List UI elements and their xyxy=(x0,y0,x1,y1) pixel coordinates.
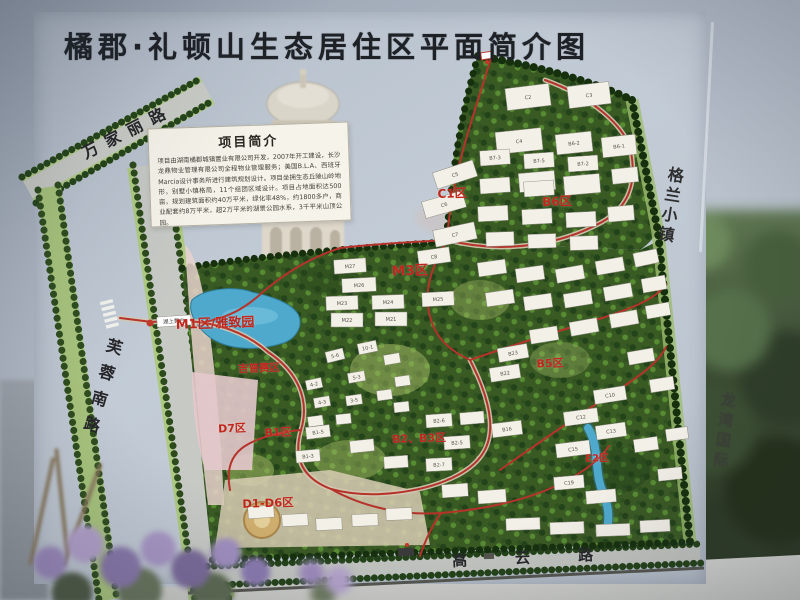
zone-label-c1: C1区 xyxy=(437,184,467,202)
building-block xyxy=(376,389,392,401)
building-block xyxy=(349,439,374,453)
building-block: 3-5 xyxy=(345,394,362,406)
building-block xyxy=(640,519,671,533)
building-label: B16 xyxy=(502,426,512,433)
building-label: B7-2 xyxy=(577,161,589,168)
west-gate-marker xyxy=(147,320,154,327)
building-block: M27 xyxy=(334,258,367,274)
building-block: B7-3 xyxy=(480,149,511,166)
building-block xyxy=(607,205,634,222)
building-block: B2-5 xyxy=(444,435,471,450)
building-label: C15 xyxy=(568,446,579,453)
building-label: M24 xyxy=(383,300,394,306)
building-block: M23 xyxy=(326,295,358,310)
building-block xyxy=(316,517,343,530)
building-block xyxy=(566,211,597,228)
building-block xyxy=(478,489,507,504)
building-label: B2-5 xyxy=(451,440,463,447)
building-block: M21 xyxy=(375,312,407,326)
building-block xyxy=(611,167,638,185)
building-block: B7-2 xyxy=(568,155,599,172)
building-label: B6-1 xyxy=(613,143,625,150)
building-label: C3 xyxy=(585,93,592,100)
building-label: M25 xyxy=(433,297,444,304)
building-block: M24 xyxy=(372,294,404,309)
page-title: 橘郡·礼顿山生态居住区平面简介图 xyxy=(22,24,632,66)
building-block: M26 xyxy=(342,277,377,293)
building-block xyxy=(528,234,556,249)
building-label: 3-5 xyxy=(350,397,359,404)
zone-label-m1: M1区/雅致园 xyxy=(175,311,254,333)
site-plan-photo: C2C3C4B6-2B6-1C5C6C7B7-3B7-5B7-2C8M27M26… xyxy=(0,0,800,600)
building-block xyxy=(307,415,323,427)
building-block xyxy=(506,517,540,530)
zone-label-b5: B5区 xyxy=(536,355,564,372)
building-block: B1-5 xyxy=(305,425,330,440)
building-block xyxy=(657,467,682,481)
building-label: M27 xyxy=(345,264,356,271)
info-box-heading: 项目简介 xyxy=(157,128,341,153)
building-block xyxy=(386,508,412,521)
building-block xyxy=(570,236,598,251)
building-block xyxy=(336,413,352,425)
zone-label-e2: E2区 xyxy=(585,449,609,465)
building-block xyxy=(394,401,410,413)
building-label: M22 xyxy=(342,318,353,324)
building-block xyxy=(585,489,616,505)
building-block: B2-6 xyxy=(426,413,453,428)
building-label: B7-5 xyxy=(533,158,545,165)
building-block xyxy=(460,411,485,425)
building-label: C4 xyxy=(515,139,522,146)
flowers-foreground xyxy=(18,512,288,600)
building-block xyxy=(384,455,409,469)
zone-label-b2b3: B2、B3区 xyxy=(392,429,447,447)
building-block: B1-3 xyxy=(296,449,321,463)
building-block xyxy=(352,514,378,527)
building-block xyxy=(480,177,511,194)
building-block xyxy=(522,208,553,225)
zone-label-d7: D7区 xyxy=(218,420,246,437)
building-label: B6-2 xyxy=(568,140,580,147)
building-label: B1-3 xyxy=(302,454,314,461)
building-label: C19 xyxy=(564,480,574,487)
zone-label-d1d6: D1-D6区 xyxy=(242,494,294,512)
building-label: C8 xyxy=(430,254,437,261)
building-label: B7-3 xyxy=(489,155,501,162)
building-block xyxy=(478,205,509,222)
master-plan-map: C2C3C4B6-2B6-1C5C6C7B7-3B7-5B7-2C8M27M26… xyxy=(0,0,800,600)
building-block: M22 xyxy=(331,313,363,327)
building-block: C19 xyxy=(553,475,584,491)
zone-label-m3: M3区 xyxy=(391,258,428,279)
info-box-body: 项目由湖南橘郡城镇置业有限公司开发，2007年开工建设，长沙龙鼎物业管理有限公司… xyxy=(157,150,342,228)
building-block: B7-5 xyxy=(524,152,555,169)
building-label: M21 xyxy=(386,317,397,323)
building-label: M23 xyxy=(337,301,348,307)
building-label: B2-6 xyxy=(433,418,445,425)
zone-label-gypsy: 吉普赛区 xyxy=(238,360,280,376)
building-block: B6-1 xyxy=(601,134,637,157)
zone-label-b6: B6区 xyxy=(542,192,572,210)
building-block: M25 xyxy=(422,291,455,307)
building-label: B2-7 xyxy=(433,462,445,469)
building-label: C2 xyxy=(524,95,531,102)
project-info-box: 项目简介 项目由湖南橘郡城镇置业有限公司开发，2007年开工建设，长沙龙鼎物业管… xyxy=(147,122,351,228)
building-block xyxy=(394,375,410,387)
south-gate-marker xyxy=(398,548,414,557)
crosswalk xyxy=(100,299,119,329)
building-block xyxy=(486,232,514,247)
flowers-foreground-small xyxy=(288,552,366,600)
building-block xyxy=(596,523,630,536)
zone-label-b1: B1区 xyxy=(264,424,292,441)
building-block: B2-7 xyxy=(426,457,453,471)
building-block: B6-2 xyxy=(555,131,593,155)
building-block xyxy=(442,483,469,498)
building-block xyxy=(550,521,584,534)
building-label: M26 xyxy=(354,283,365,290)
